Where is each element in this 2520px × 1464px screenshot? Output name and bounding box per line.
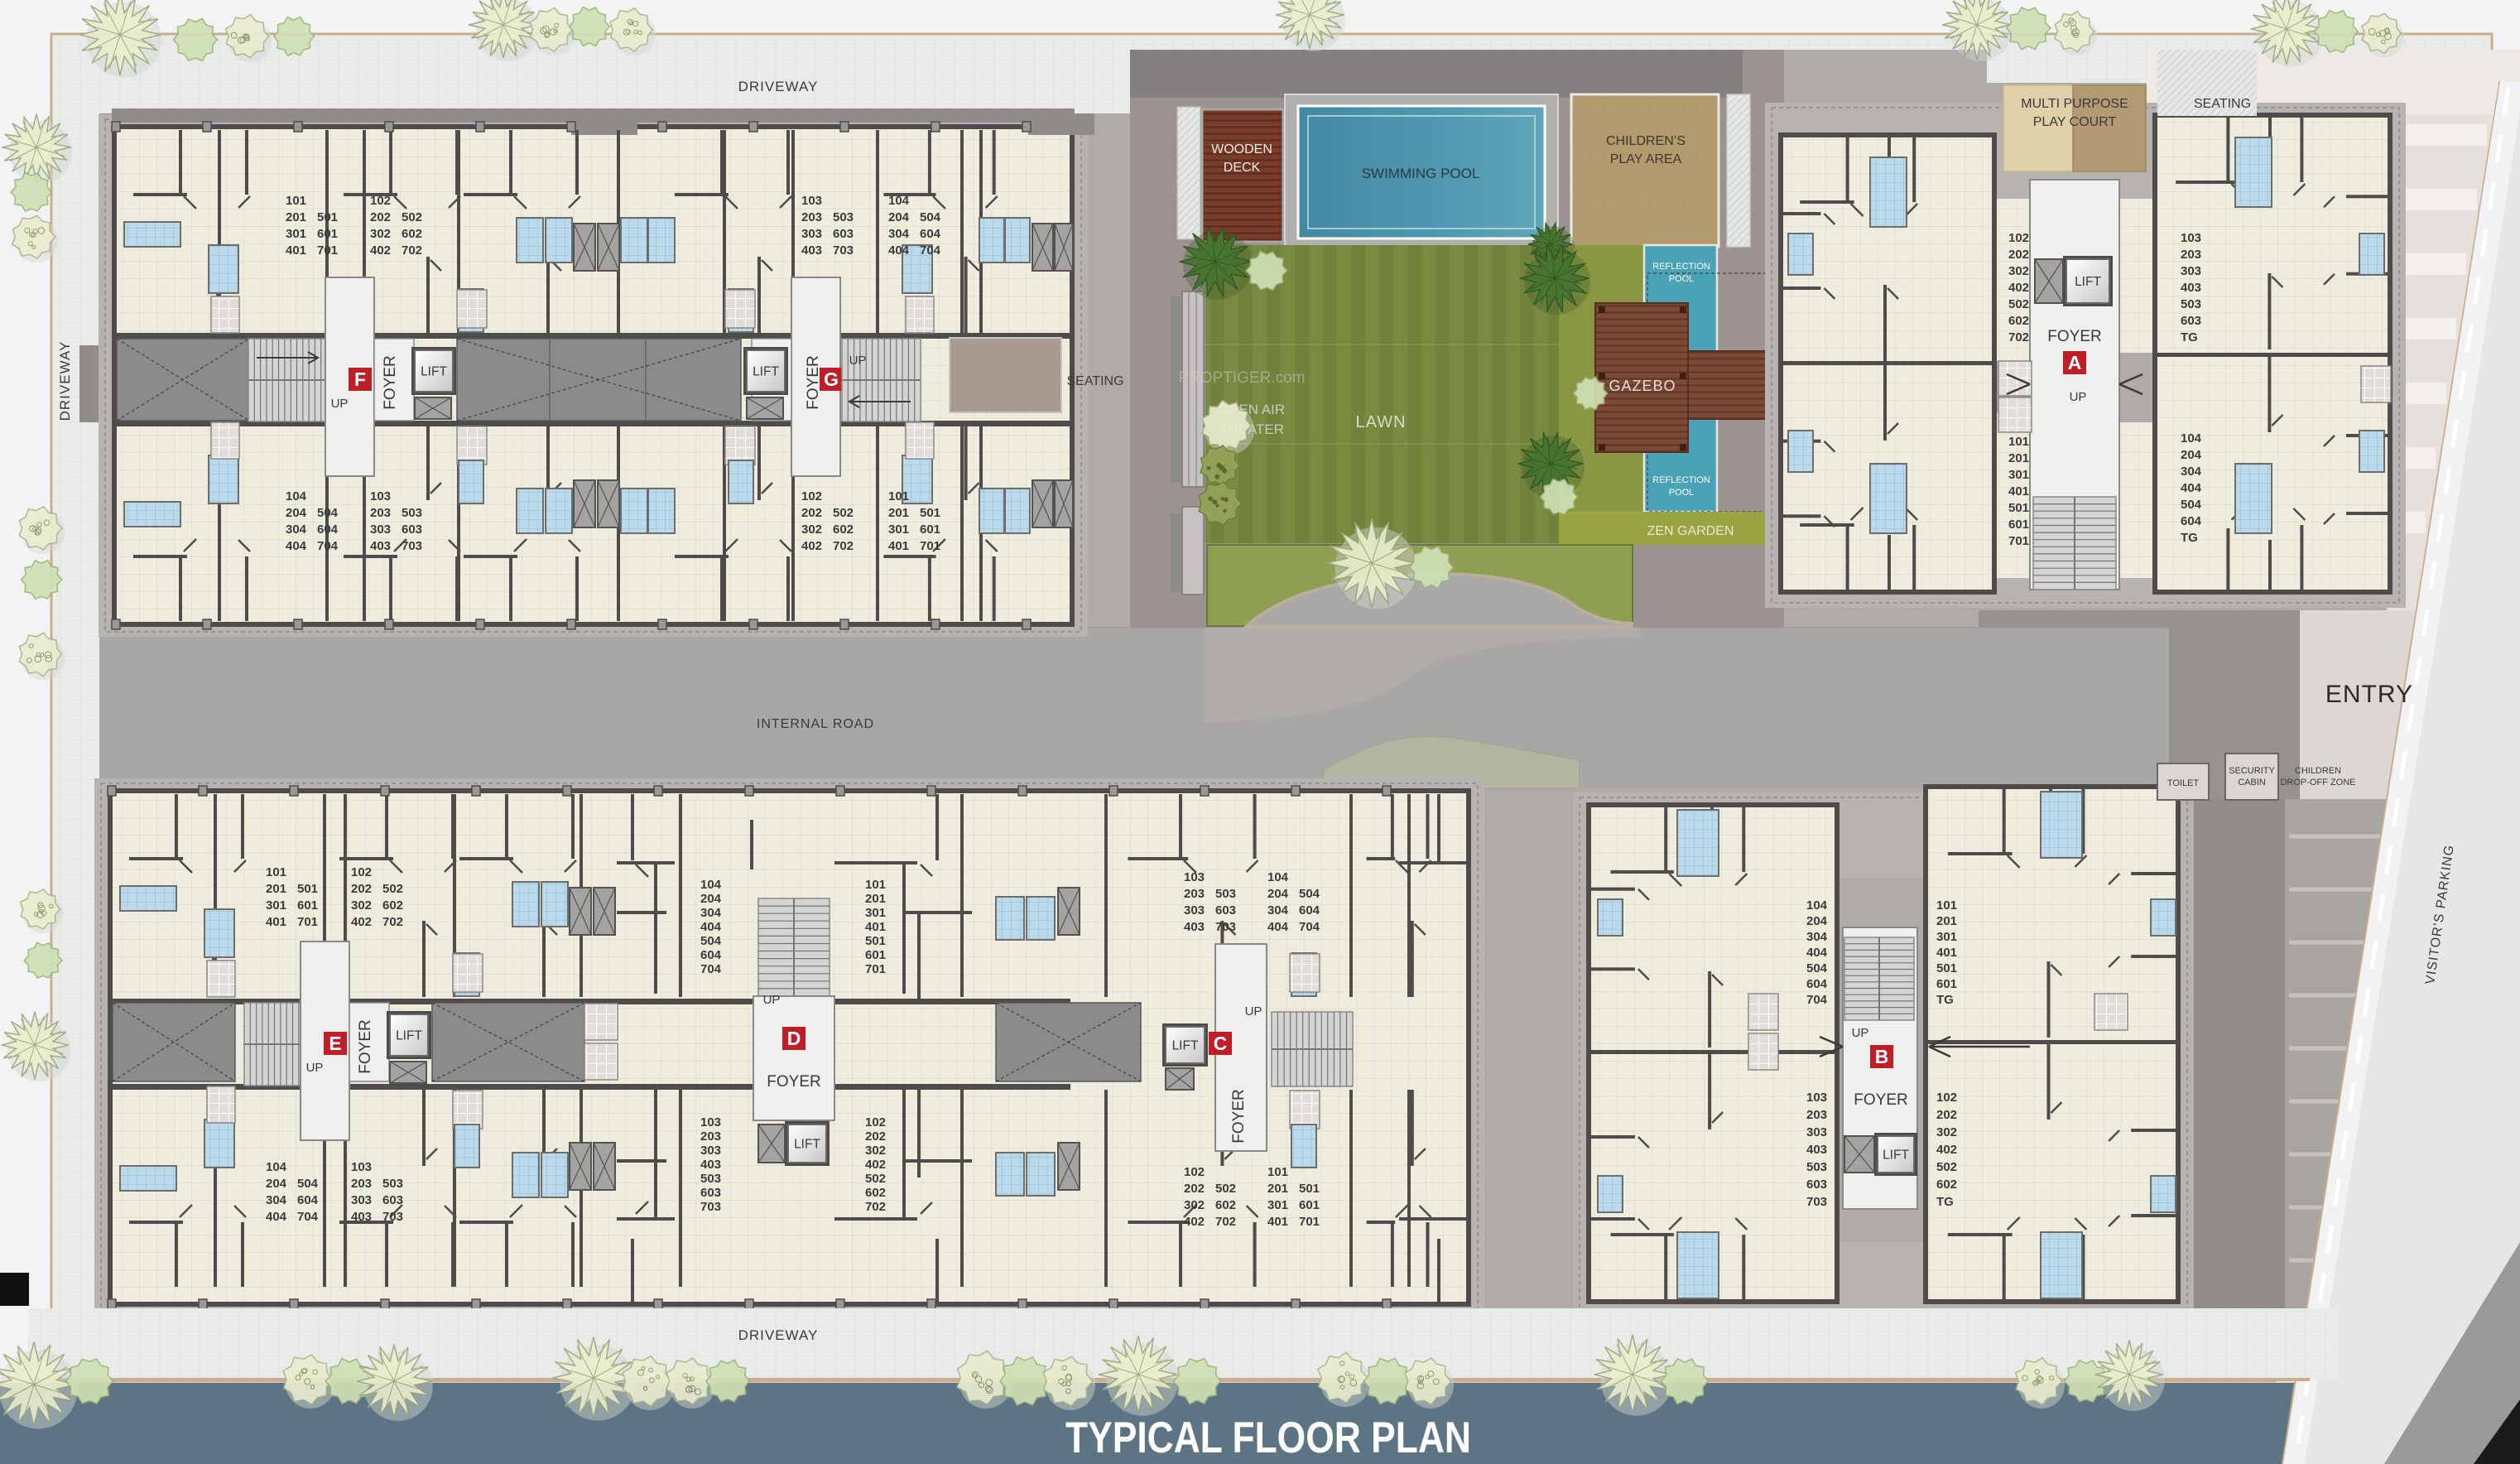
svg-text:MULTI PURPOSE: MULTI PURPOSE xyxy=(2021,97,2128,111)
svg-text:FOYER: FOYER xyxy=(382,355,399,409)
svg-text:503: 503 xyxy=(833,210,854,224)
svg-text:SWIMMING POOL: SWIMMING POOL xyxy=(1362,166,1480,181)
svg-text:CHILDREN: CHILDREN xyxy=(2295,766,2341,776)
svg-text:301: 301 xyxy=(266,898,286,913)
svg-text:702: 702 xyxy=(402,243,422,258)
svg-text:LIFT: LIFT xyxy=(1172,1039,1199,1053)
svg-text:501: 501 xyxy=(1299,1182,1320,1196)
svg-text:302: 302 xyxy=(801,523,822,537)
svg-text:704: 704 xyxy=(317,539,339,553)
svg-text:301: 301 xyxy=(286,227,306,241)
svg-text:403: 403 xyxy=(1806,1143,1827,1157)
svg-text:501: 501 xyxy=(920,506,940,520)
svg-text:604: 604 xyxy=(700,948,722,962)
svg-text:504: 504 xyxy=(1299,887,1320,901)
svg-text:101: 101 xyxy=(286,194,306,208)
svg-text:FOYER: FOYER xyxy=(805,355,822,409)
svg-text:502: 502 xyxy=(1936,1160,1957,1174)
svg-text:104: 104 xyxy=(286,489,307,503)
svg-text:603: 603 xyxy=(700,1186,721,1200)
svg-text:701: 701 xyxy=(2008,534,2029,548)
svg-text:403: 403 xyxy=(1184,920,1205,934)
svg-text:401: 401 xyxy=(1267,1215,1288,1229)
svg-text:604: 604 xyxy=(1806,977,1828,991)
svg-text:604: 604 xyxy=(297,1193,319,1207)
svg-text:204: 204 xyxy=(1267,887,1289,901)
svg-text:DRIVEWAY: DRIVEWAY xyxy=(738,1327,819,1343)
svg-text:103: 103 xyxy=(801,194,822,208)
svg-text:604: 604 xyxy=(2181,514,2202,528)
svg-text:102: 102 xyxy=(370,194,391,208)
svg-text:402: 402 xyxy=(370,243,391,258)
svg-text:SECURITY: SECURITY xyxy=(2229,766,2275,776)
svg-text:402: 402 xyxy=(1936,1143,1957,1157)
svg-text:503: 503 xyxy=(1806,1160,1827,1174)
svg-text:402: 402 xyxy=(865,1158,886,1172)
svg-text:101: 101 xyxy=(865,878,886,892)
svg-text:INTERNAL ROAD: INTERNAL ROAD xyxy=(757,717,874,731)
svg-text:104: 104 xyxy=(700,878,722,892)
svg-text:LIFT: LIFT xyxy=(421,365,447,379)
svg-text:501: 501 xyxy=(1936,961,1957,975)
svg-text:202: 202 xyxy=(370,210,391,224)
svg-text:404: 404 xyxy=(700,920,722,934)
svg-text:703: 703 xyxy=(1806,1195,1827,1209)
svg-text:UP: UP xyxy=(306,1061,324,1075)
svg-text:401: 401 xyxy=(2008,484,2029,498)
svg-text:702: 702 xyxy=(865,1200,886,1214)
svg-text:DECK: DECK xyxy=(1224,161,1261,175)
svg-text:C: C xyxy=(1214,1033,1228,1054)
svg-text:E: E xyxy=(329,1033,341,1054)
svg-text:202: 202 xyxy=(1184,1182,1205,1196)
svg-text:304: 304 xyxy=(2181,465,2202,479)
svg-text:704: 704 xyxy=(1806,993,1828,1007)
svg-text:DRIVEWAY: DRIVEWAY xyxy=(57,341,73,421)
svg-text:103: 103 xyxy=(700,1115,721,1129)
svg-text:601: 601 xyxy=(1299,1198,1320,1212)
svg-text:403: 403 xyxy=(2181,281,2201,295)
svg-text:UP: UP xyxy=(849,354,867,368)
svg-text:204: 204 xyxy=(266,1177,287,1191)
svg-text:TG: TG xyxy=(1936,993,1954,1007)
svg-text:303: 303 xyxy=(370,523,391,537)
svg-text:102: 102 xyxy=(1936,1091,1957,1105)
svg-text:501: 501 xyxy=(865,934,886,948)
svg-text:ENTRY: ENTRY xyxy=(2325,681,2413,708)
svg-text:404: 404 xyxy=(1267,920,1289,934)
svg-text:102: 102 xyxy=(801,489,822,503)
svg-text:704: 704 xyxy=(700,962,722,976)
svg-text:103: 103 xyxy=(1806,1091,1827,1105)
svg-text:TYPICAL FLOOR PLAN: TYPICAL FLOOR PLAN xyxy=(1065,1413,1471,1462)
svg-text:201: 201 xyxy=(266,882,286,896)
svg-text:TG: TG xyxy=(2181,531,2198,545)
svg-text:302: 302 xyxy=(1184,1198,1205,1212)
svg-text:501: 501 xyxy=(2008,501,2029,515)
svg-text:503: 503 xyxy=(700,1172,721,1186)
svg-text:UP: UP xyxy=(2070,390,2087,404)
svg-text:501: 501 xyxy=(317,210,338,224)
svg-text:602: 602 xyxy=(1215,1198,1236,1212)
svg-text:302: 302 xyxy=(865,1144,886,1158)
svg-text:403: 403 xyxy=(700,1158,721,1172)
svg-text:701: 701 xyxy=(317,243,338,258)
svg-text:301: 301 xyxy=(1936,930,1957,944)
svg-text:701: 701 xyxy=(865,962,886,976)
svg-text:304: 304 xyxy=(888,227,910,241)
svg-text:104: 104 xyxy=(2181,431,2202,445)
svg-text:302: 302 xyxy=(351,898,372,913)
svg-text:703: 703 xyxy=(1215,920,1236,934)
svg-text:304: 304 xyxy=(700,906,722,920)
svg-text:601: 601 xyxy=(2008,518,2029,532)
svg-text:202: 202 xyxy=(801,506,822,520)
svg-text:LIFT: LIFT xyxy=(753,365,779,379)
svg-text:601: 601 xyxy=(920,523,940,537)
svg-text:603: 603 xyxy=(1806,1177,1827,1192)
svg-text:LIFT: LIFT xyxy=(2075,275,2101,289)
svg-text:UP: UP xyxy=(763,993,781,1007)
svg-text:POOL: POOL xyxy=(1669,274,1695,284)
svg-text:603: 603 xyxy=(402,523,422,537)
svg-text:ZEN GARDEN: ZEN GARDEN xyxy=(1647,524,1734,538)
svg-text:301: 301 xyxy=(1267,1198,1288,1212)
svg-text:502: 502 xyxy=(382,882,403,896)
svg-text:704: 704 xyxy=(1299,920,1320,934)
svg-text:702: 702 xyxy=(382,915,403,929)
svg-text:504: 504 xyxy=(920,210,941,224)
svg-text:503: 503 xyxy=(2181,297,2201,311)
svg-text:LIFT: LIFT xyxy=(396,1029,422,1043)
svg-text:601: 601 xyxy=(297,898,318,913)
svg-text:102: 102 xyxy=(2008,231,2029,245)
svg-text:404: 404 xyxy=(266,1210,287,1224)
svg-text:104: 104 xyxy=(888,194,910,208)
svg-text:204: 204 xyxy=(2181,448,2202,462)
svg-text:201: 201 xyxy=(888,506,909,520)
svg-text:101: 101 xyxy=(1936,898,1957,913)
svg-text:502: 502 xyxy=(402,210,422,224)
svg-text:503: 503 xyxy=(382,1177,403,1191)
svg-text:602: 602 xyxy=(833,523,854,537)
svg-text:303: 303 xyxy=(801,227,822,241)
svg-text:301: 301 xyxy=(2008,468,2029,482)
svg-text:702: 702 xyxy=(833,539,854,553)
svg-text:303: 303 xyxy=(1806,1125,1827,1139)
svg-text:601: 601 xyxy=(317,227,338,241)
svg-text:104: 104 xyxy=(1267,870,1289,884)
svg-text:201: 201 xyxy=(1267,1182,1288,1196)
svg-text:502: 502 xyxy=(1215,1182,1236,1196)
svg-text:604: 604 xyxy=(920,227,941,241)
svg-text:504: 504 xyxy=(297,1177,319,1191)
svg-text:TOILET: TOILET xyxy=(2167,778,2200,788)
svg-text:504: 504 xyxy=(1806,961,1828,975)
svg-text:302: 302 xyxy=(2008,264,2029,278)
svg-text:104: 104 xyxy=(266,1160,287,1174)
svg-text:503: 503 xyxy=(402,506,422,520)
svg-text:SEATING: SEATING xyxy=(1066,374,1123,388)
svg-text:601: 601 xyxy=(1936,977,1957,991)
svg-text:UP: UP xyxy=(331,397,349,411)
svg-text:701: 701 xyxy=(1299,1215,1320,1229)
svg-text:B: B xyxy=(1875,1046,1889,1067)
svg-text:203: 203 xyxy=(700,1129,721,1144)
svg-text:601: 601 xyxy=(865,948,886,962)
svg-text:DROP-OFF ZONE: DROP-OFF ZONE xyxy=(2280,778,2355,787)
svg-text:201: 201 xyxy=(286,210,306,224)
svg-text:204: 204 xyxy=(700,892,722,906)
svg-text:401: 401 xyxy=(286,243,306,258)
svg-text:103: 103 xyxy=(2181,231,2201,245)
svg-text:304: 304 xyxy=(286,523,307,537)
svg-text:402: 402 xyxy=(801,539,822,553)
svg-text:603: 603 xyxy=(2181,314,2201,328)
svg-text:402: 402 xyxy=(2008,281,2029,295)
svg-text:704: 704 xyxy=(297,1210,319,1224)
svg-text:102: 102 xyxy=(865,1115,886,1129)
svg-text:LIFT: LIFT xyxy=(1883,1149,1909,1163)
svg-text:202: 202 xyxy=(2008,248,2029,262)
svg-text:203: 203 xyxy=(370,506,391,520)
svg-text:303: 303 xyxy=(351,1193,372,1207)
svg-text:TG: TG xyxy=(2181,330,2198,344)
svg-text:504: 504 xyxy=(317,506,339,520)
svg-text:703: 703 xyxy=(382,1210,403,1224)
svg-text:CHILDREN’S: CHILDREN’S xyxy=(1606,134,1686,148)
svg-text:302: 302 xyxy=(1936,1125,1957,1139)
svg-text:102: 102 xyxy=(1184,1165,1205,1179)
svg-text:702: 702 xyxy=(2008,330,2029,344)
svg-text:402: 402 xyxy=(1184,1215,1205,1229)
svg-text:REFLECTION: REFLECTION xyxy=(1652,475,1710,485)
svg-text:603: 603 xyxy=(382,1193,403,1207)
svg-text:PROPTIGER.com: PROPTIGER.com xyxy=(1178,369,1305,387)
svg-text:SEATING: SEATING xyxy=(2194,97,2251,111)
svg-text:203: 203 xyxy=(801,210,822,224)
svg-text:404: 404 xyxy=(888,243,910,258)
svg-text:302: 302 xyxy=(370,227,391,241)
svg-text:504: 504 xyxy=(2181,498,2202,512)
svg-text:LAWN: LAWN xyxy=(1355,413,1406,431)
svg-text:DRIVEWAY: DRIVEWAY xyxy=(738,79,819,94)
svg-text:101: 101 xyxy=(888,489,909,503)
svg-text:PLAY AREA: PLAY AREA xyxy=(1610,152,1682,166)
svg-text:303: 303 xyxy=(1184,903,1205,917)
svg-text:204: 204 xyxy=(286,506,307,520)
svg-text:602: 602 xyxy=(382,898,403,913)
svg-text:TG: TG xyxy=(1936,1195,1954,1209)
svg-text:604: 604 xyxy=(317,523,339,537)
svg-text:502: 502 xyxy=(2008,297,2029,311)
svg-text:A: A xyxy=(2068,352,2082,373)
svg-text:104: 104 xyxy=(1806,898,1828,913)
svg-text:501: 501 xyxy=(297,882,318,896)
svg-text:PLAY COURT: PLAY COURT xyxy=(2033,115,2117,129)
svg-text:303: 303 xyxy=(700,1144,721,1158)
svg-text:102: 102 xyxy=(351,865,372,879)
svg-text:FOYER: FOYER xyxy=(1854,1091,1907,1109)
svg-text:602: 602 xyxy=(402,227,422,241)
svg-text:404: 404 xyxy=(2181,481,2202,495)
svg-text:101: 101 xyxy=(266,865,286,879)
svg-text:701: 701 xyxy=(297,915,318,929)
svg-text:304: 304 xyxy=(266,1193,287,1207)
svg-text:403: 403 xyxy=(370,539,391,553)
svg-text:UP: UP xyxy=(1245,1004,1262,1019)
svg-text:WOODEN: WOODEN xyxy=(1211,142,1272,157)
svg-text:203: 203 xyxy=(1806,1108,1827,1122)
svg-text:UP: UP xyxy=(1852,1026,1869,1040)
svg-text:203: 203 xyxy=(2181,248,2201,262)
svg-text:401: 401 xyxy=(865,920,886,934)
svg-text:POOL: POOL xyxy=(1669,488,1695,498)
svg-text:202: 202 xyxy=(1936,1108,1957,1122)
svg-text:103: 103 xyxy=(1184,870,1205,884)
svg-text:301: 301 xyxy=(888,523,909,537)
svg-text:101: 101 xyxy=(1267,1165,1288,1179)
svg-text:401: 401 xyxy=(1936,946,1957,960)
svg-text:503: 503 xyxy=(1215,887,1236,901)
svg-text:203: 203 xyxy=(1184,887,1205,901)
svg-text:103: 103 xyxy=(351,1160,372,1174)
svg-text:403: 403 xyxy=(351,1210,372,1224)
svg-text:103: 103 xyxy=(370,489,391,503)
svg-text:504: 504 xyxy=(700,934,722,948)
svg-text:201: 201 xyxy=(865,892,886,906)
svg-text:GAZEBO: GAZEBO xyxy=(1609,378,1676,394)
svg-text:FOYER: FOYER xyxy=(2047,328,2101,345)
svg-text:204: 204 xyxy=(888,210,910,224)
svg-text:404: 404 xyxy=(1806,946,1828,960)
svg-text:REFLECTION: REFLECTION xyxy=(1652,262,1710,272)
svg-text:304: 304 xyxy=(1806,930,1828,944)
svg-text:101: 101 xyxy=(2008,435,2029,449)
svg-text:301: 301 xyxy=(865,906,886,920)
svg-text:LIFT: LIFT xyxy=(794,1138,820,1152)
svg-text:G: G xyxy=(824,368,839,390)
svg-text:704: 704 xyxy=(920,243,941,258)
svg-text:201: 201 xyxy=(2008,451,2029,465)
svg-text:703: 703 xyxy=(700,1200,721,1214)
svg-text:403: 403 xyxy=(801,243,822,258)
svg-text:FOYER: FOYER xyxy=(357,1019,374,1073)
svg-text:703: 703 xyxy=(833,243,854,258)
svg-text:F: F xyxy=(354,368,366,390)
svg-text:201: 201 xyxy=(1936,914,1957,928)
svg-text:603: 603 xyxy=(833,227,854,241)
svg-text:701: 701 xyxy=(920,539,940,553)
svg-text:602: 602 xyxy=(865,1186,886,1200)
svg-text:703: 703 xyxy=(402,539,422,553)
svg-text:602: 602 xyxy=(2008,314,2029,328)
svg-text:202: 202 xyxy=(351,882,372,896)
svg-text:CABIN: CABIN xyxy=(2238,778,2266,787)
svg-text:603: 603 xyxy=(1215,903,1236,917)
svg-text:D: D xyxy=(787,1028,801,1049)
svg-text:401: 401 xyxy=(888,539,909,553)
svg-text:502: 502 xyxy=(833,506,854,520)
svg-text:203: 203 xyxy=(351,1177,372,1191)
svg-text:602: 602 xyxy=(1936,1177,1957,1192)
svg-text:402: 402 xyxy=(351,915,372,929)
svg-text:404: 404 xyxy=(286,539,307,553)
svg-text:401: 401 xyxy=(266,915,286,929)
svg-text:304: 304 xyxy=(1267,903,1289,917)
svg-text:202: 202 xyxy=(865,1129,886,1144)
svg-text:FOYER: FOYER xyxy=(1230,1089,1248,1143)
svg-text:204: 204 xyxy=(1806,914,1828,928)
svg-text:702: 702 xyxy=(1215,1215,1236,1229)
svg-text:604: 604 xyxy=(1299,903,1320,917)
svg-text:502: 502 xyxy=(865,1172,886,1186)
svg-text:FOYER: FOYER xyxy=(767,1073,820,1091)
svg-text:303: 303 xyxy=(2181,264,2201,278)
